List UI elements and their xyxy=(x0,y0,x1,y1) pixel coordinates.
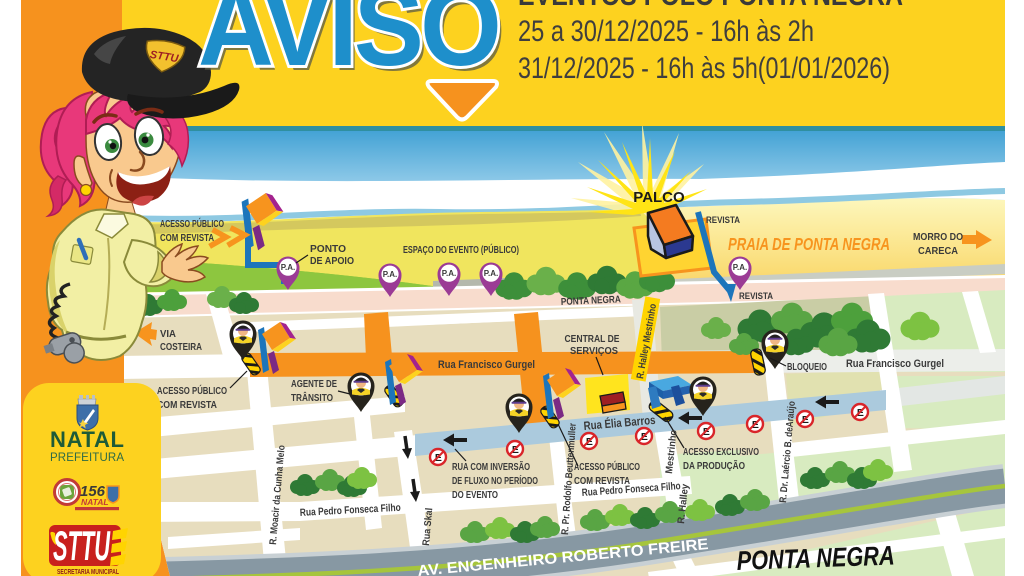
svg-text:COM REVISTA: COM REVISTA xyxy=(157,399,217,411)
svg-text:NATAL: NATAL xyxy=(50,427,124,452)
svg-text:SERVIÇOS: SERVIÇOS xyxy=(570,346,618,357)
svg-text:SECRETARIA MUNICIPAL: SECRETARIA MUNICIPAL xyxy=(57,567,119,576)
svg-text:CENTRAL DE: CENTRAL DE xyxy=(565,334,620,345)
svg-text:PREFEITURA: PREFEITURA xyxy=(50,452,124,464)
svg-text:PONTO: PONTO xyxy=(310,243,346,255)
svg-text:PONTA NEGRA: PONTA NEGRA xyxy=(736,541,895,576)
svg-text:ACESSO PÚBLICO: ACESSO PÚBLICO xyxy=(157,384,227,397)
svg-text:DA PRODUÇÃO: DA PRODUÇÃO xyxy=(683,459,745,472)
svg-text:REVISTA: REVISTA xyxy=(706,215,740,226)
svg-text:AVISO: AVISO xyxy=(198,0,498,89)
svg-text:ESPAÇO DO EVENTO (PÚBLICO): ESPAÇO DO EVENTO (PÚBLICO) xyxy=(403,243,519,256)
svg-text:DE FLUXO NO PERÍODO: DE FLUXO NO PERÍODO xyxy=(452,474,538,487)
svg-text:PRAIA DE PONTA NEGRA: PRAIA DE PONTA NEGRA xyxy=(728,234,890,254)
svg-text:RUA COM INVERSÃO: RUA COM INVERSÃO xyxy=(452,460,530,473)
svg-text:MORRO DO: MORRO DO xyxy=(913,231,963,243)
svg-text:DE APOIO: DE APOIO xyxy=(310,255,354,267)
svg-text:PALCO: PALCO xyxy=(633,189,685,206)
svg-text:31/12/2025 - 16h às 5h(01/01/2: 31/12/2025 - 16h às 5h(01/01/2026) xyxy=(518,52,890,85)
svg-text:EVENTOS POLO PONTA NEGRA: EVENTOS POLO PONTA NEGRA xyxy=(518,0,903,12)
svg-text:AGENTE DE: AGENTE DE xyxy=(291,378,337,390)
svg-text:25 a 30/12/2025 - 16h às 2h: 25 a 30/12/2025 - 16h às 2h xyxy=(518,15,814,48)
svg-text:TRÂNSITO: TRÂNSITO xyxy=(291,391,333,404)
svg-text:DO EVENTO: DO EVENTO xyxy=(452,489,498,501)
svg-text:VIA: VIA xyxy=(160,328,176,340)
svg-text:REVISTA: REVISTA xyxy=(739,291,773,302)
svg-text:COSTEIRA: COSTEIRA xyxy=(160,341,202,353)
svg-text:STTU: STTU xyxy=(53,522,111,569)
svg-text:ACESSO PÚBLICO: ACESSO PÚBLICO xyxy=(574,460,640,473)
svg-text:Rua Francisco Gurgel: Rua Francisco Gurgel xyxy=(846,358,944,370)
svg-text:BLOQUEIO: BLOQUEIO xyxy=(787,361,827,373)
svg-text:Rua Francisco Gurgel: Rua Francisco Gurgel xyxy=(438,359,535,371)
svg-text:ACESSO EXCLUSIVO: ACESSO EXCLUSIVO xyxy=(683,446,759,458)
svg-text:COM REVISTA: COM REVISTA xyxy=(160,232,214,244)
svg-text:ACESSO PÚBLICO: ACESSO PÚBLICO xyxy=(160,217,224,230)
svg-text:NATAL: NATAL xyxy=(81,497,109,507)
svg-text:CARECA: CARECA xyxy=(918,245,958,257)
